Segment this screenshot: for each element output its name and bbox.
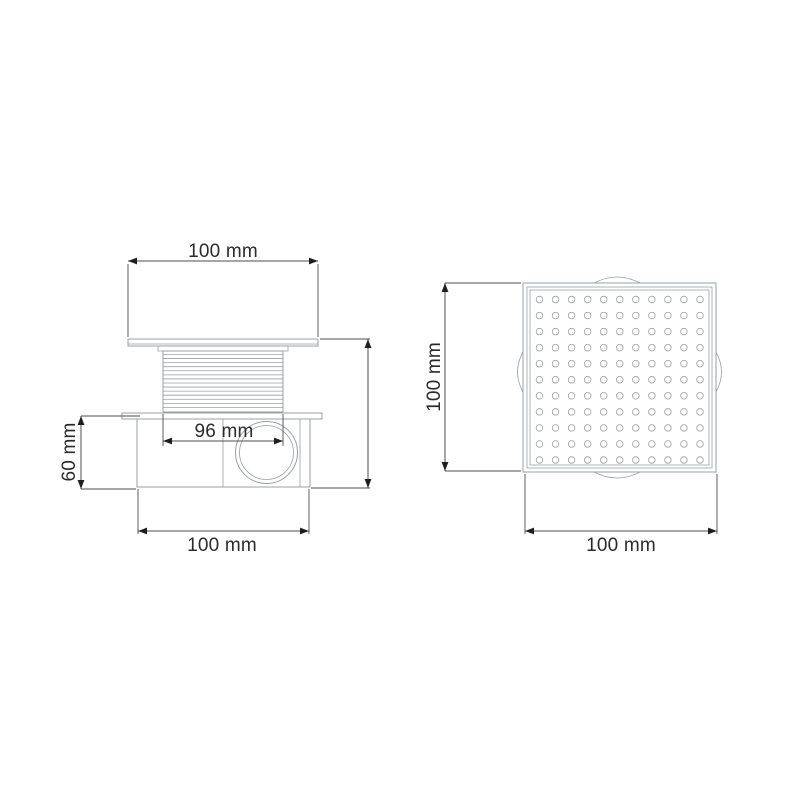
thread-section [163,351,283,412]
thread-ribs [163,355,283,408]
top-view: 100 mm 100 mm [424,277,722,556]
top-view-height-label: 100 mm [424,342,445,412]
dim-top-view-height: 100 mm [424,283,521,471]
dim-side-top-width: 100 mm [128,241,318,337]
grate-tabs [518,277,722,478]
side-height-label: 60 mm [59,422,80,481]
side-view: 100 mm 96 mm 60 mm 100 mm [59,241,370,556]
drain-technical-drawing: 100 mm 96 mm 60 mm 100 mm [0,0,800,800]
side-top-width-label: 100 mm [188,241,258,262]
dim-top-view-width: 100 mm [525,474,717,556]
top-view-width-label: 100 mm [586,535,656,556]
dim-side-bottom-width: 100 mm [138,489,309,556]
flange [122,413,322,419]
dim-side-height: 60 mm [59,416,140,489]
technical-drawing-canvas: 100 mm 96 mm 60 mm 100 mm [0,0,800,800]
grate-plate-side [128,339,318,351]
side-bottom-width-label: 100 mm [187,535,257,556]
side-thread-width-label: 96 mm [194,421,253,442]
grate-holes [536,296,703,463]
